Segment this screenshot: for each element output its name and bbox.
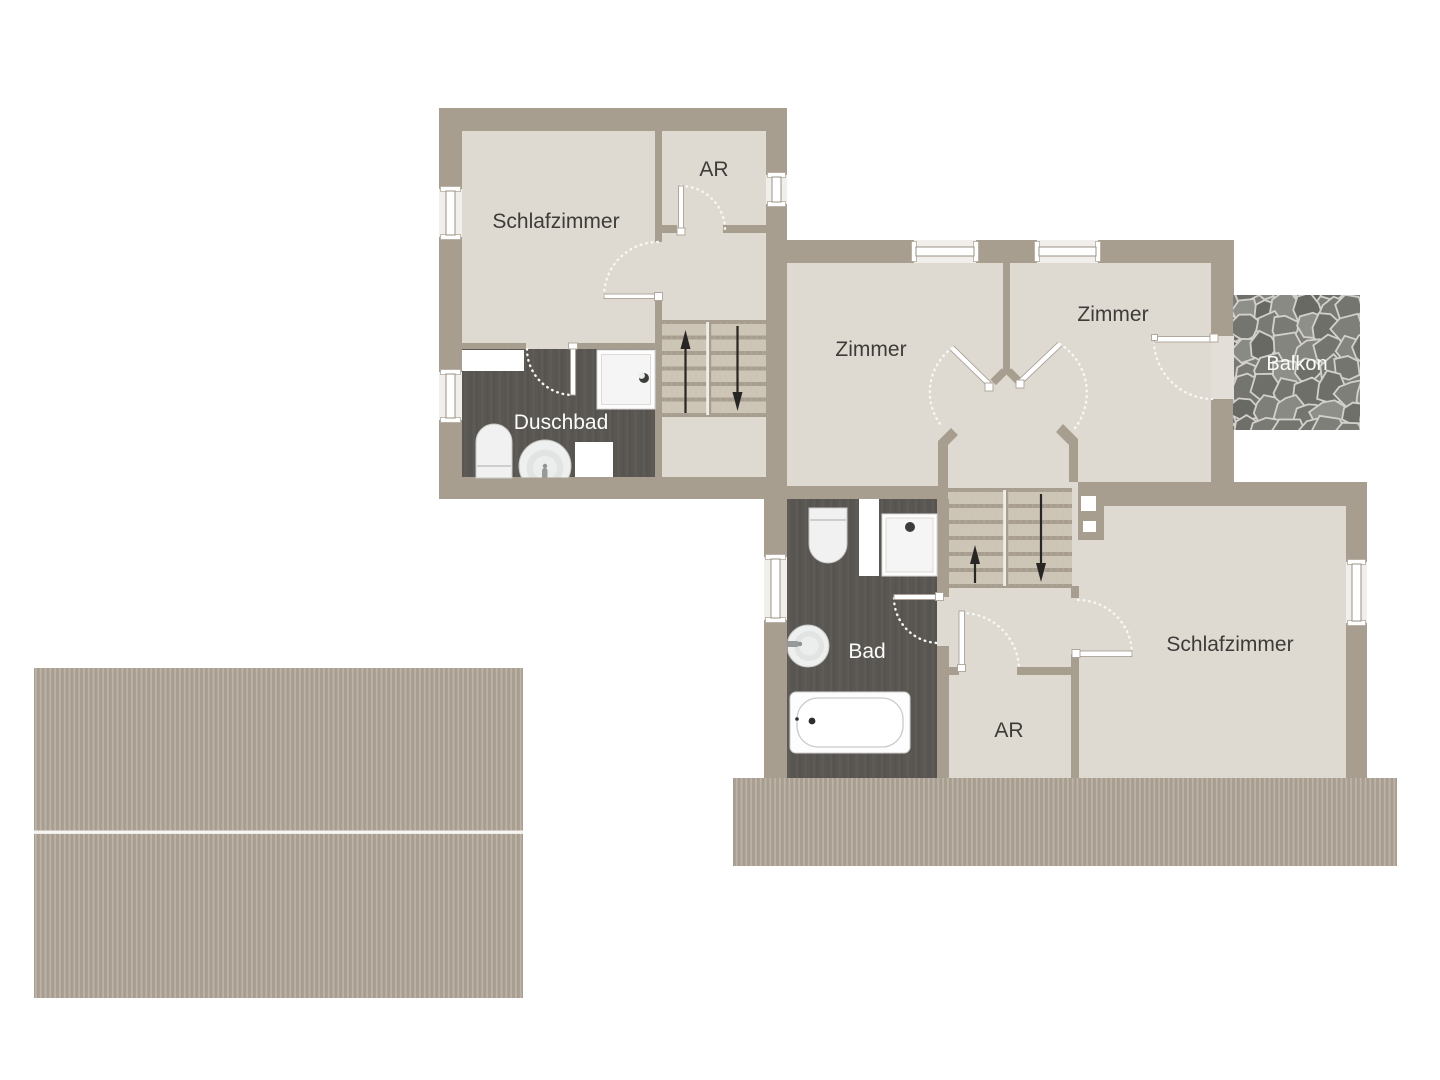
- svg-text:Zimmer: Zimmer: [1077, 303, 1148, 326]
- svg-text:Balkon: Balkon: [1266, 353, 1327, 375]
- svg-text:Zimmer: Zimmer: [835, 338, 906, 361]
- svg-text:Duschbad: Duschbad: [514, 411, 609, 434]
- svg-text:Bad: Bad: [848, 640, 885, 663]
- svg-text:Schlafzimmer: Schlafzimmer: [492, 210, 619, 233]
- svg-text:AR: AR: [699, 158, 728, 181]
- svg-text:Schlafzimmer: Schlafzimmer: [1166, 633, 1293, 656]
- svg-text:AR: AR: [994, 719, 1023, 742]
